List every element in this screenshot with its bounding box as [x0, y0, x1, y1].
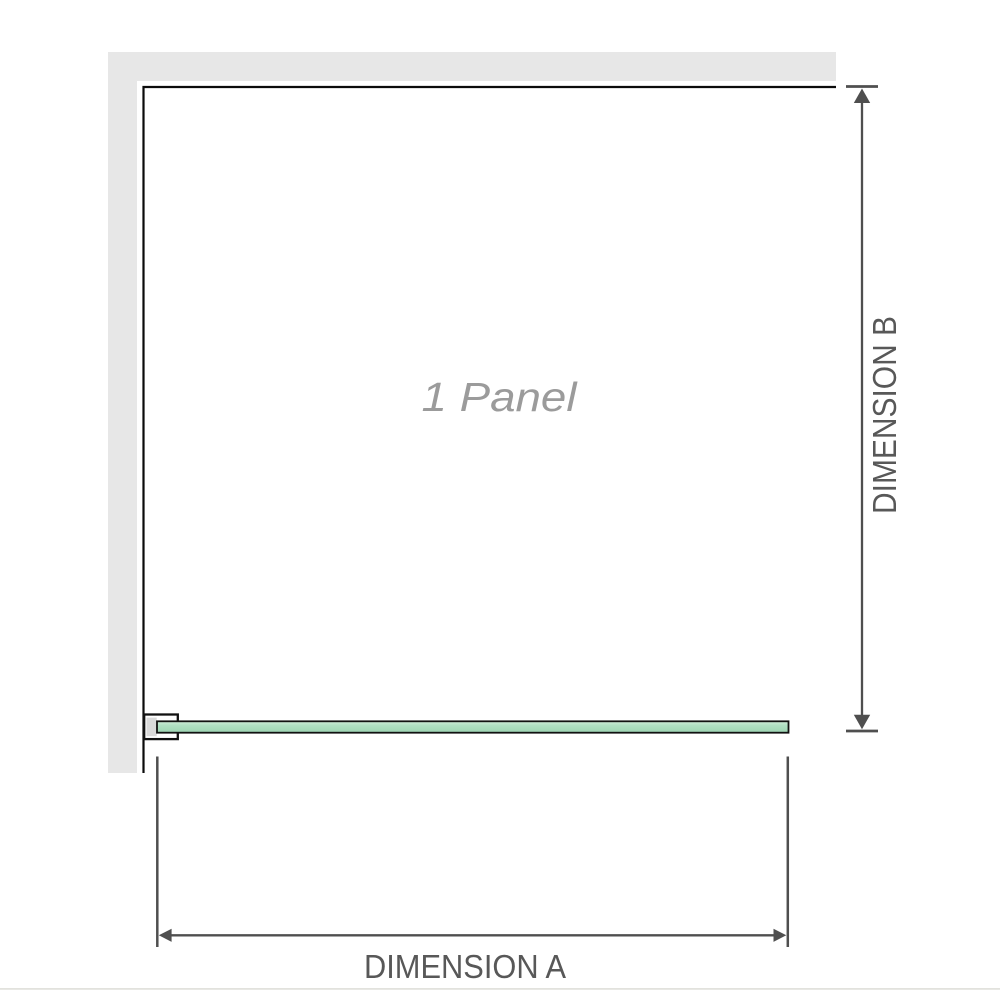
svg-text:DIMENSION B: DIMENSION B [866, 316, 903, 514]
svg-text:1 Panel: 1 Panel [422, 374, 579, 420]
svg-text:DIMENSION A: DIMENSION A [364, 948, 566, 985]
